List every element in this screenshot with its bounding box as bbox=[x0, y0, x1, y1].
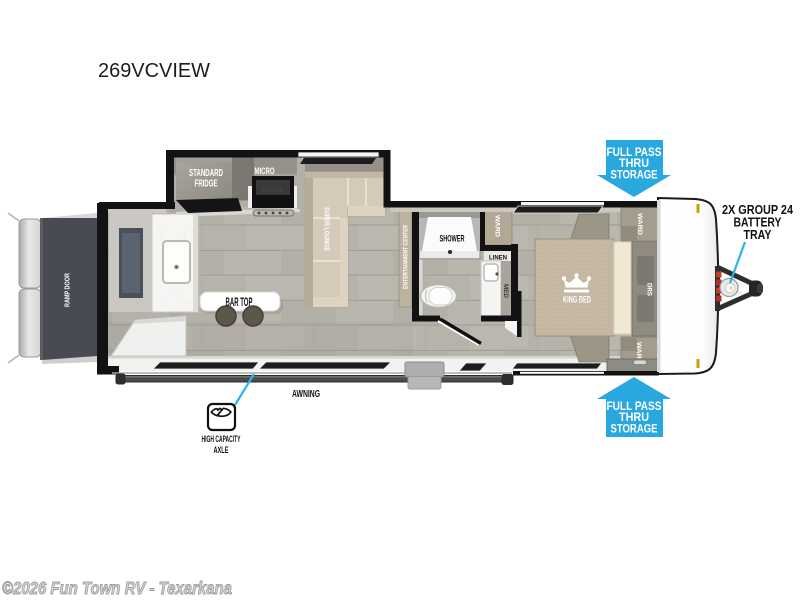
svg-text:SUPER LOUNGE: SUPER LOUNGE bbox=[322, 207, 331, 251]
svg-text:HIGH CAPACITY: HIGH CAPACITY bbox=[202, 434, 241, 445]
svg-text:269VCVIEW: 269VCVIEW bbox=[98, 60, 210, 82]
svg-text:THRU: THRU bbox=[619, 158, 649, 170]
svg-text:SHOWER: SHOWER bbox=[440, 234, 465, 244]
svg-text:RAMP DOOR: RAMP DOOR bbox=[63, 273, 72, 307]
svg-text:AXLE: AXLE bbox=[214, 445, 229, 456]
svg-text:DUAL: DUAL bbox=[262, 188, 285, 194]
svg-text:WARD: WARD bbox=[493, 215, 500, 237]
svg-text:LINEN: LINEN bbox=[489, 255, 507, 262]
svg-text:©2026 Fun Town RV - Texarkana: ©2026 Fun Town RV - Texarkana bbox=[2, 578, 232, 598]
svg-text:AWNING: AWNING bbox=[292, 388, 320, 400]
svg-text:WARD: WARD bbox=[636, 213, 643, 235]
svg-text:MICRO: MICRO bbox=[255, 166, 275, 176]
svg-text:ENTERTAINMENT CENTER: ENTERTAINMENT CENTER bbox=[404, 224, 410, 289]
svg-text:DRS: DRS bbox=[645, 283, 652, 297]
svg-text:FRIDGE: FRIDGE bbox=[195, 179, 218, 190]
svg-text:MED: MED bbox=[502, 284, 509, 298]
svg-text:STORAGE: STORAGE bbox=[611, 170, 658, 182]
svg-text:THRU: THRU bbox=[619, 412, 649, 424]
svg-text:STANDARD: STANDARD bbox=[189, 168, 223, 179]
svg-text:STORAGE: STORAGE bbox=[611, 424, 658, 436]
svg-text:KING BED: KING BED bbox=[563, 295, 591, 305]
svg-text:TRAY: TRAY bbox=[744, 228, 773, 242]
